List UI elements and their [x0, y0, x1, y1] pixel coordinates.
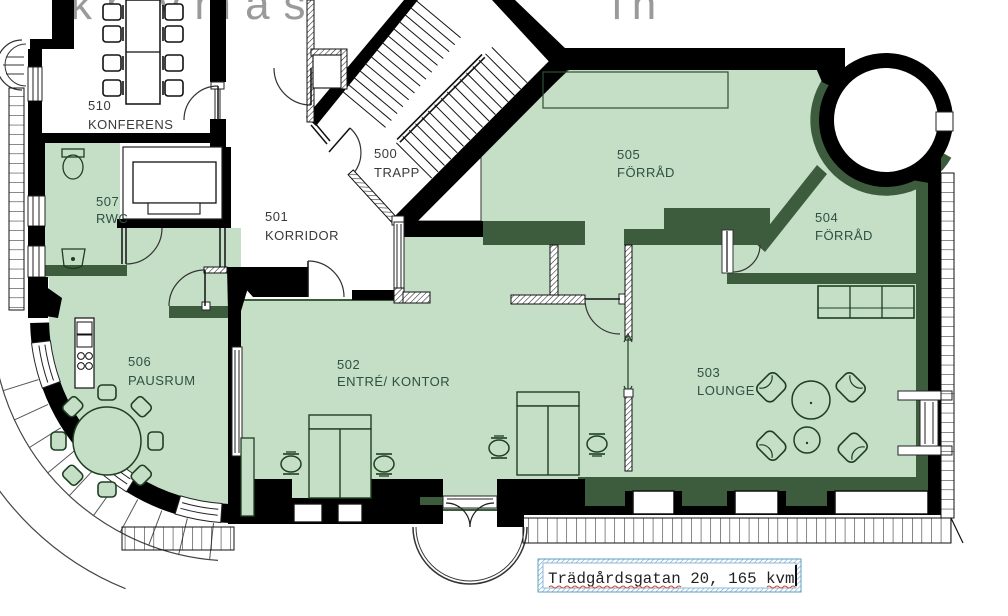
svg-text:500: 500	[374, 146, 397, 161]
svg-text:PAUSRUM: PAUSRUM	[128, 373, 196, 388]
svg-text:FÖRRÅD: FÖRRÅD	[617, 165, 675, 180]
svg-text:505: 505	[617, 147, 640, 162]
svg-text:503: 503	[697, 365, 720, 380]
svg-text:Trädgårdsgatan 20, 165 kvm: Trädgårdsgatan 20, 165 kvm	[548, 570, 794, 588]
svg-text:510: 510	[88, 98, 111, 113]
svg-text:KONFERENS: KONFERENS	[88, 117, 173, 132]
svg-text:FÖRRÅD: FÖRRÅD	[815, 228, 873, 243]
svg-text:507: 507	[96, 194, 119, 209]
svg-text:502: 502	[337, 357, 360, 372]
svg-text:RWC: RWC	[96, 211, 128, 226]
svg-text:TRAPP: TRAPP	[374, 165, 420, 180]
svg-text:in: in	[612, 0, 666, 29]
svg-text:KORRIDOR: KORRIDOR	[265, 228, 339, 243]
svg-text:ENTRÉ/ KONTOR: ENTRÉ/ KONTOR	[337, 374, 450, 389]
svg-text:504: 504	[815, 210, 838, 225]
svg-text:501: 501	[265, 209, 288, 224]
svg-text:506: 506	[128, 354, 151, 369]
svg-text:LOUNGE: LOUNGE	[697, 383, 755, 398]
